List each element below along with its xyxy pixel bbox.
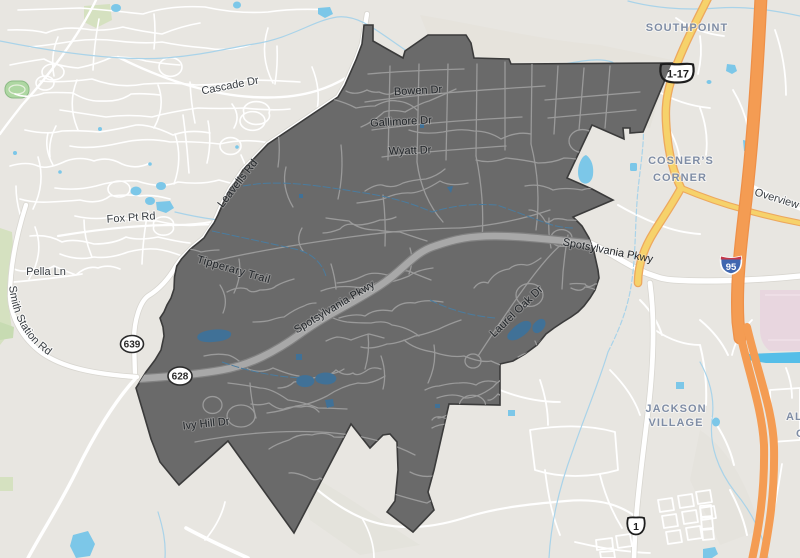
svg-text:VILLAGE: VILLAGE — [648, 417, 703, 429]
svg-text:Wyatt Dr: Wyatt Dr — [388, 144, 431, 157]
svg-text:Bowen Dr: Bowen Dr — [394, 84, 443, 99]
svg-text:COSNER’S: COSNER’S — [648, 155, 714, 167]
svg-text:95: 95 — [726, 262, 737, 273]
svg-text:C: C — [796, 428, 800, 440]
svg-text:Pella Ln: Pella Ln — [26, 266, 66, 278]
svg-text:1: 1 — [633, 521, 639, 533]
svg-text:1-17: 1-17 — [667, 69, 689, 81]
svg-text:SOUTHPOINT: SOUTHPOINT — [646, 22, 729, 34]
svg-text:ALE: ALE — [786, 411, 800, 423]
svg-text:639: 639 — [124, 340, 141, 351]
svg-text:JACKSON: JACKSON — [645, 403, 706, 415]
svg-text:CORNER: CORNER — [653, 172, 707, 184]
svg-text:628: 628 — [172, 372, 189, 383]
